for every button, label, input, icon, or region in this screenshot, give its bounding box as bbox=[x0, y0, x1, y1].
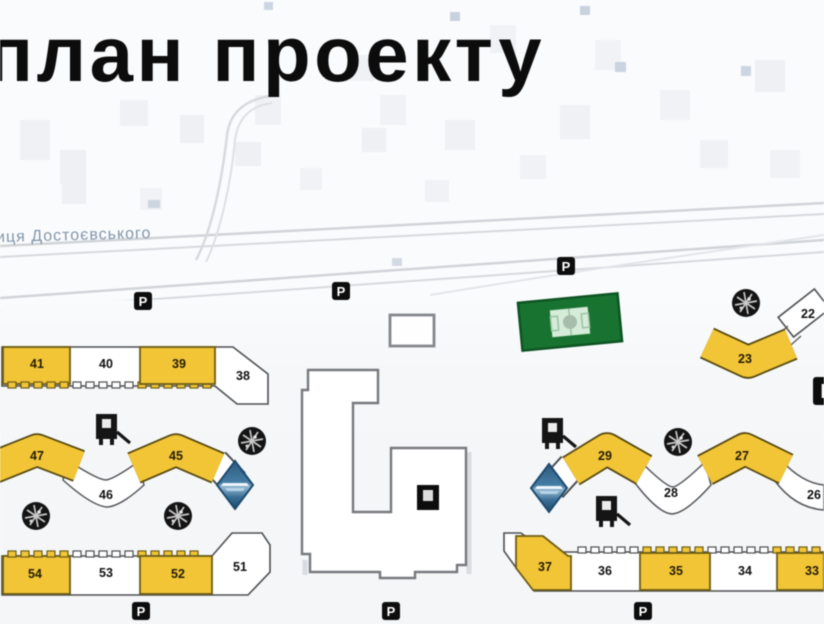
svg-text:P: P bbox=[820, 381, 824, 403]
svg-text:35: 35 bbox=[669, 564, 683, 578]
svg-text:53: 53 bbox=[99, 566, 113, 580]
svg-text:P: P bbox=[639, 604, 648, 619]
svg-text:28: 28 bbox=[664, 486, 678, 500]
svg-text:26: 26 bbox=[807, 488, 821, 502]
svg-text:40: 40 bbox=[99, 357, 113, 371]
svg-text:36: 36 bbox=[598, 564, 612, 578]
svg-text:39: 39 bbox=[172, 357, 186, 371]
svg-text:34: 34 bbox=[738, 564, 752, 578]
svg-text:P: P bbox=[137, 604, 146, 619]
svg-text:29: 29 bbox=[598, 449, 612, 463]
svg-text:33: 33 bbox=[805, 564, 819, 578]
svg-text:P: P bbox=[337, 284, 346, 299]
svg-text:23: 23 bbox=[738, 352, 752, 366]
svg-text:P: P bbox=[562, 259, 571, 274]
svg-text:27: 27 bbox=[735, 449, 749, 463]
svg-text:22: 22 bbox=[801, 307, 815, 321]
svg-text:52: 52 bbox=[171, 567, 185, 581]
svg-text:41: 41 bbox=[30, 357, 44, 371]
svg-text:54: 54 bbox=[28, 567, 42, 581]
svg-text:51: 51 bbox=[233, 560, 247, 574]
svg-text:37: 37 bbox=[538, 560, 552, 574]
svg-text:45: 45 bbox=[169, 449, 183, 463]
svg-text:47: 47 bbox=[30, 449, 44, 463]
svg-text:P: P bbox=[387, 604, 396, 619]
svg-text:38: 38 bbox=[236, 369, 250, 383]
svg-text:P: P bbox=[139, 294, 148, 309]
svg-text:46: 46 bbox=[99, 488, 113, 502]
